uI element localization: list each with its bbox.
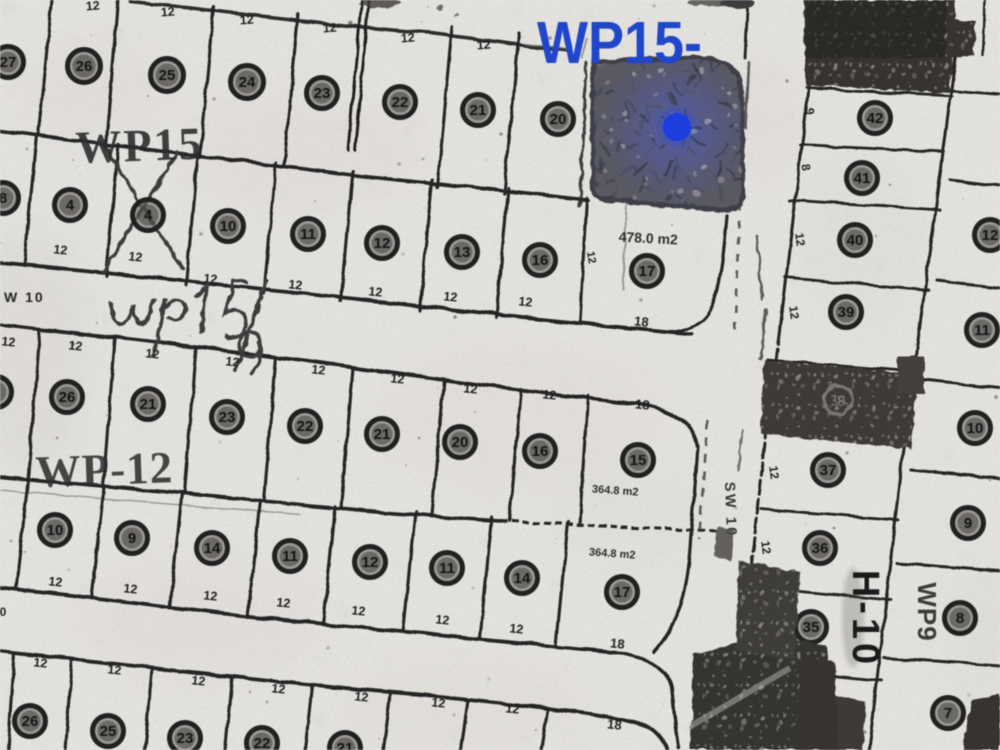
- svg-text:12: 12: [982, 227, 999, 244]
- svg-text:12: 12: [518, 294, 533, 309]
- svg-text:12: 12: [476, 38, 491, 53]
- svg-text:16: 16: [532, 252, 549, 269]
- svg-text:12: 12: [145, 346, 160, 361]
- svg-text:H-10: H-10: [844, 570, 886, 668]
- svg-text:12: 12: [1, 334, 16, 349]
- svg-text:478.0 m2: 478.0 m2: [618, 228, 678, 247]
- svg-text:12: 12: [400, 31, 415, 46]
- svg-text:12: 12: [160, 5, 175, 20]
- svg-text:21: 21: [337, 740, 354, 750]
- svg-text:12: 12: [786, 305, 802, 320]
- svg-text:12: 12: [53, 242, 68, 257]
- svg-text:W 10: W 10: [4, 289, 45, 305]
- svg-text:12: 12: [68, 338, 83, 353]
- svg-text:12: 12: [107, 662, 122, 677]
- svg-text:23: 23: [314, 85, 331, 102]
- svg-text:23: 23: [177, 730, 194, 747]
- svg-text:4: 4: [144, 207, 153, 224]
- svg-text:12: 12: [85, 0, 100, 13]
- svg-text:38: 38: [830, 392, 846, 408]
- svg-text:12: 12: [276, 595, 291, 610]
- svg-text:7: 7: [944, 705, 952, 722]
- svg-text:12: 12: [435, 612, 450, 627]
- svg-text:11: 11: [282, 548, 298, 565]
- svg-text:12: 12: [758, 540, 774, 555]
- svg-text:12: 12: [505, 701, 520, 716]
- svg-text:11: 11: [974, 322, 990, 339]
- svg-text:12: 12: [374, 235, 391, 252]
- svg-text:12: 12: [239, 13, 254, 28]
- svg-text:12: 12: [509, 621, 524, 636]
- svg-text:9: 9: [128, 530, 136, 547]
- svg-text:12: 12: [351, 603, 366, 618]
- svg-text:23: 23: [219, 409, 236, 426]
- svg-text:12: 12: [431, 695, 446, 710]
- svg-text:17: 17: [614, 584, 631, 601]
- svg-text:12: 12: [322, 21, 337, 36]
- svg-text:12: 12: [584, 250, 598, 264]
- svg-text:8: 8: [956, 610, 964, 627]
- svg-text:35: 35: [803, 619, 820, 636]
- svg-text:12: 12: [443, 289, 458, 304]
- svg-text:WP-12: WP-12: [35, 442, 174, 497]
- svg-text:22: 22: [392, 94, 409, 111]
- svg-text:4: 4: [66, 197, 75, 214]
- svg-text:12: 12: [362, 554, 379, 571]
- svg-text:12: 12: [191, 673, 206, 688]
- svg-text:17: 17: [639, 263, 656, 280]
- svg-text:12: 12: [225, 354, 240, 369]
- svg-text:22: 22: [254, 735, 271, 750]
- svg-text:24: 24: [239, 74, 256, 91]
- svg-text:25: 25: [100, 723, 117, 740]
- svg-text:12: 12: [463, 381, 478, 396]
- svg-text:8: 8: [0, 190, 7, 207]
- svg-text:12: 12: [33, 655, 48, 670]
- svg-text:21: 21: [374, 426, 391, 443]
- svg-text:14: 14: [514, 570, 531, 587]
- svg-text:25: 25: [159, 67, 176, 84]
- svg-text:41: 41: [854, 170, 871, 187]
- svg-text:16: 16: [532, 443, 549, 460]
- svg-text:11: 11: [300, 226, 316, 243]
- svg-text:26: 26: [76, 58, 93, 75]
- svg-text:39: 39: [838, 304, 855, 321]
- svg-text:12: 12: [311, 362, 326, 377]
- svg-text:37: 37: [820, 462, 837, 479]
- svg-text:12: 12: [542, 387, 557, 402]
- svg-text:22: 22: [297, 418, 314, 435]
- svg-text:WP15-: WP15-: [537, 10, 702, 76]
- svg-text:21: 21: [470, 102, 487, 119]
- svg-text:12: 12: [203, 588, 218, 603]
- svg-text:11: 11: [439, 560, 455, 577]
- svg-text:40: 40: [847, 232, 864, 249]
- svg-text:15: 15: [630, 452, 647, 469]
- svg-text:9: 9: [964, 515, 972, 532]
- svg-text:27: 27: [0, 54, 16, 71]
- svg-text:18: 18: [633, 313, 649, 329]
- svg-text:12: 12: [123, 581, 138, 596]
- svg-text:WP15: WP15: [75, 118, 205, 173]
- svg-text:21: 21: [140, 396, 157, 413]
- svg-text:WP9: WP9: [912, 582, 942, 641]
- svg-text:12: 12: [766, 465, 782, 480]
- svg-text:0: 0: [0, 605, 7, 619]
- svg-text:20: 20: [452, 434, 469, 451]
- svg-text:12: 12: [354, 689, 369, 704]
- svg-text:26: 26: [22, 713, 39, 730]
- svg-text:12: 12: [128, 249, 143, 264]
- svg-text:10: 10: [967, 420, 984, 437]
- svg-text:14: 14: [204, 540, 221, 557]
- svg-text:18: 18: [634, 396, 650, 412]
- svg-text:18: 18: [609, 635, 625, 651]
- svg-text:20: 20: [550, 111, 567, 128]
- svg-text:18: 18: [606, 716, 622, 732]
- svg-text:13: 13: [454, 244, 471, 261]
- svg-text:12: 12: [390, 371, 405, 386]
- svg-text:12: 12: [792, 232, 808, 247]
- svg-text:42: 42: [867, 110, 884, 127]
- svg-text:10: 10: [220, 218, 237, 235]
- svg-text:12: 12: [288, 277, 303, 292]
- svg-text:36: 36: [812, 540, 829, 557]
- svg-text:12: 12: [368, 284, 383, 299]
- svg-text:12: 12: [48, 574, 63, 589]
- svg-text:12: 12: [271, 681, 286, 696]
- svg-text:26: 26: [59, 389, 76, 406]
- svg-text:10: 10: [47, 522, 64, 539]
